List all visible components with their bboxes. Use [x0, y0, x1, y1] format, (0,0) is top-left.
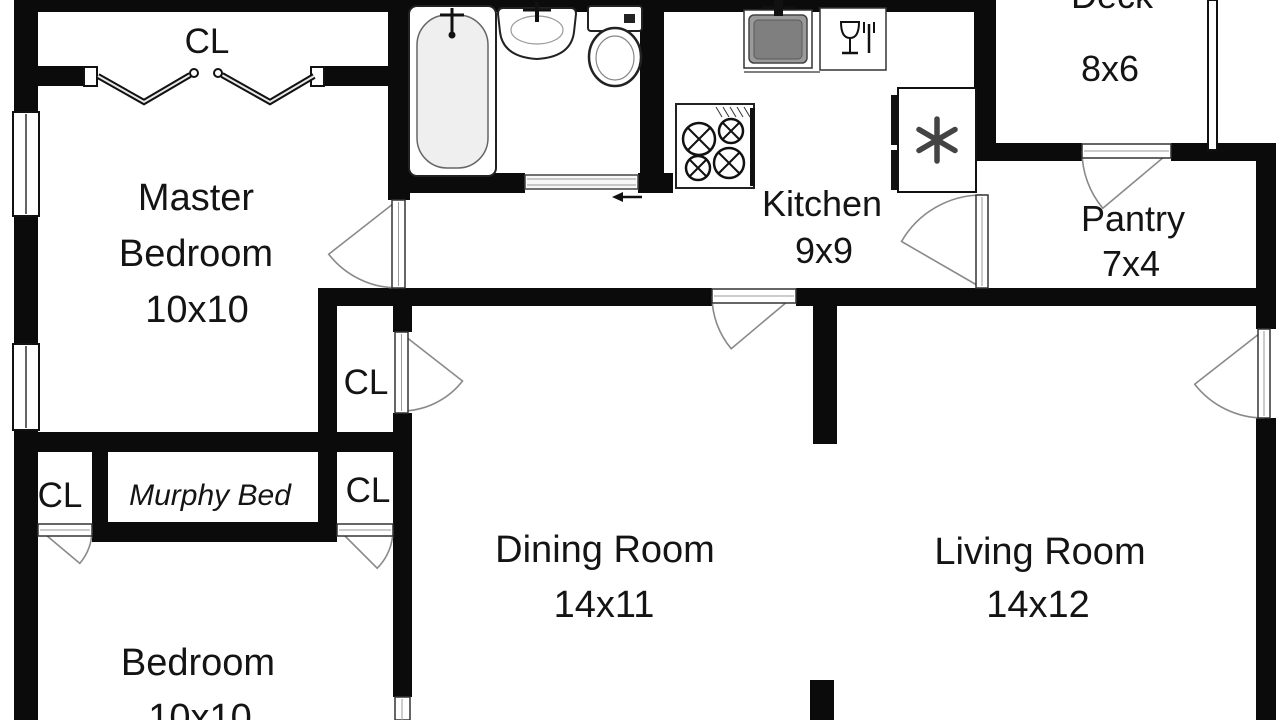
bifold-door-icon [84, 67, 324, 102]
living-room-label: Living Room [934, 531, 1145, 573]
wall-closet-hall-door-stub-top [393, 306, 412, 332]
window-icon [13, 112, 39, 216]
living-room-dims: 14x12 [986, 584, 1090, 626]
wall-deck-bottom-left [974, 143, 1082, 161]
dining-room-label: Dining Room [495, 529, 715, 571]
bedroom-dims: 10x10 [148, 697, 252, 720]
dining-room-dims: 14x11 [554, 584, 655, 626]
bathtub-icon [409, 6, 496, 176]
door-swing-icon [902, 195, 989, 288]
deck-railing [1208, 0, 1217, 150]
window-icon [13, 344, 39, 430]
door-swing-icon [337, 524, 393, 568]
master-bedroom-label-line2: Bedroom [119, 233, 273, 275]
closet-hall-label: CL [344, 363, 389, 402]
floor-plan-svg: CL Master Bedroom 10x10 Kitchen 9x9 Deck… [0, 0, 1280, 720]
wall-right-outer-lower [1256, 418, 1276, 720]
floor-plan: CL Master Bedroom 10x10 Kitchen 9x9 Deck… [0, 0, 1280, 720]
door-leaf [395, 697, 410, 720]
room-labels: CL Master Bedroom 10x10 Kitchen 9x9 Deck… [38, 0, 1185, 720]
master-bedroom-dims: 10x10 [145, 289, 249, 331]
pantry-dims: 7x4 [1102, 243, 1160, 284]
wall-bath-bottom-right [638, 173, 673, 193]
stove-icon [676, 104, 755, 188]
kitchen-fixtures [676, 0, 976, 192]
refrigerator-icon [891, 88, 976, 192]
wall-bath-kitchen-divider [640, 0, 664, 193]
master-bedroom-label-line1: Master [138, 177, 254, 219]
door-swing-icon [38, 524, 92, 563]
bedroom-label: Bedroom [121, 642, 275, 684]
kitchen-label: Kitchen [762, 183, 882, 224]
wall-kitchen-right [974, 0, 996, 161]
sink-icon [498, 2, 576, 59]
sliding-door-icon [525, 175, 642, 202]
kitchen-sink-icon [744, 0, 812, 68]
kitchen-dims: 9x9 [795, 230, 853, 271]
wall-closet-left-right [92, 452, 108, 542]
closet-top-label: CL [185, 22, 230, 61]
door-swing-icon [1195, 329, 1270, 418]
deck-dims: 8x6 [1081, 48, 1139, 89]
wall-dining-living-divider [813, 306, 837, 444]
murphy-bed-label: Murphy Bed [129, 479, 292, 512]
wall-master-bottom [14, 432, 412, 452]
wall-mid-horizontal-right [796, 288, 1276, 306]
wall-closet-top-bottom-left [14, 66, 92, 86]
wall-murphy-bottom [107, 522, 319, 542]
bathroom-fixtures [409, 2, 642, 176]
dishwasher-icon [820, 8, 886, 70]
closet-right-label: CL [346, 471, 391, 510]
wall-dining-living-stub-bottom [810, 680, 834, 720]
pantry-label: Pantry [1081, 198, 1185, 239]
deck-label: Deck [1071, 0, 1154, 16]
closet-left-label: CL [38, 476, 83, 515]
door-swing-icon [395, 332, 463, 413]
wall-mid-horizontal-left [318, 288, 712, 306]
wall-closet-hall-left [318, 306, 337, 542]
door-swing-icon [712, 289, 796, 349]
door-swing-icon [329, 200, 405, 288]
wall-dining-west [393, 413, 412, 697]
toilet-icon [588, 6, 642, 86]
wall-master-right [388, 0, 410, 200]
